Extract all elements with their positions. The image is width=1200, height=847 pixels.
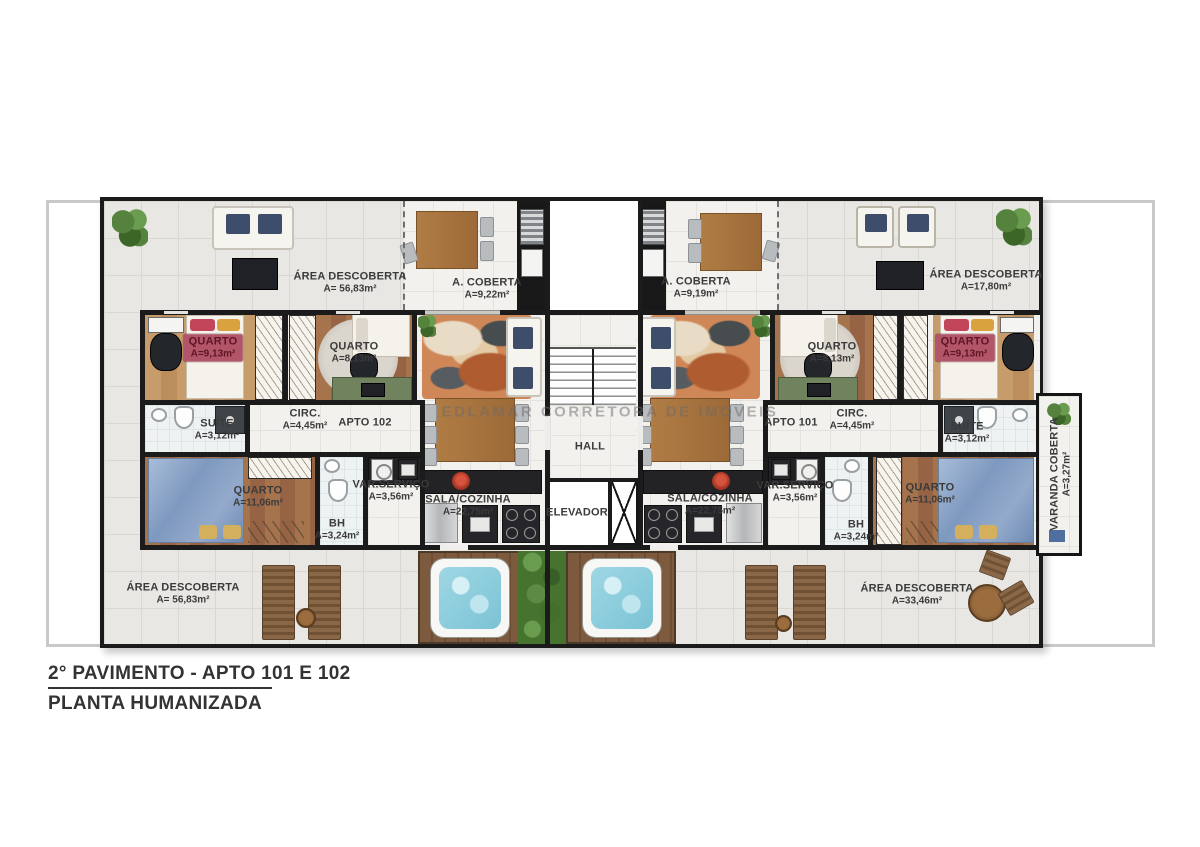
- sun-lounger: [745, 565, 778, 640]
- round-table: [968, 584, 1006, 622]
- wardrobe: [873, 315, 898, 400]
- armchair: [898, 206, 936, 248]
- plant-icon: [752, 313, 770, 339]
- double-bed: [148, 458, 244, 543]
- room-label-quarto-813-right: QUARTOA=8,13m²: [808, 340, 857, 365]
- sink: [1012, 408, 1028, 422]
- room-label-circ-left: CIRC.A=4,45m²: [283, 407, 328, 432]
- side-table: [296, 608, 316, 628]
- chair: [515, 426, 529, 444]
- stair-void: [545, 201, 638, 310]
- room-label-sala-cozinha-right: SALA/COZINHAA=22,75m²: [667, 492, 753, 517]
- room-label-quarto-913-right: QUARTOA=9,13m²: [936, 334, 995, 361]
- washing-machine: [796, 459, 818, 481]
- window: [822, 311, 846, 314]
- room-label-area-descoberta-top-right: ÁREA DESCOBERTAA=17,80m²: [929, 268, 1042, 293]
- garden-strip: [518, 551, 566, 644]
- fruit-bowl: [452, 472, 470, 490]
- wall: [770, 310, 775, 405]
- wall: [412, 310, 417, 405]
- room-label-servico-left: VAR.SERVIÇOA=3,56m²: [353, 478, 430, 503]
- plant-icon: [112, 207, 148, 249]
- rug-hatch: [248, 521, 304, 543]
- ac-unit: [641, 209, 665, 245]
- room-label-quarto-813-left: QUARTOA=8,13m²: [330, 340, 379, 365]
- room-label-quarto-1106-right: QUARTOA=11,06m²: [905, 481, 955, 506]
- armchair: [856, 206, 894, 248]
- hot-tub: [582, 558, 662, 638]
- room-label-quarto-1106-left: QUARTOA=11,06m²: [233, 484, 283, 509]
- laundry-sink: [398, 459, 418, 480]
- plan-subtitle: PLANTA HUMANIZADA: [48, 693, 262, 715]
- room-label-area-descoberta-bottom-left: ÁREA DESCOBERTAA= 56,83m²: [126, 581, 239, 606]
- room-label-servico-right: VAR.SERVIÇOA=3,56m²: [757, 479, 834, 504]
- chair: [423, 426, 437, 444]
- plant-icon: [996, 206, 1032, 248]
- wall: [245, 400, 250, 457]
- room-label-area-descoberta-top-left: ÁREA DESCOBERTAA= 56,83m²: [293, 270, 406, 295]
- toilet: [174, 406, 194, 429]
- wall: [763, 452, 1040, 457]
- room-label-sala-cozinha-left: SALA/COZINHAA=22,75m²: [425, 493, 511, 518]
- chair: [688, 243, 702, 263]
- desk-cabinet: [778, 377, 858, 401]
- chair: [515, 448, 529, 466]
- wall: [283, 310, 288, 405]
- door-mat: [1049, 530, 1065, 542]
- dresser: [1000, 317, 1034, 333]
- plan-title: 2° PAVIMENTO - APTO 101 E 102: [48, 663, 350, 685]
- dining-table: [700, 213, 762, 271]
- hot-tub: [430, 558, 510, 638]
- sofa: [640, 317, 676, 397]
- wall: [140, 310, 145, 550]
- room-label-suite-right: SUÍTEA=3,12m²: [945, 420, 990, 445]
- kitchen-island: [643, 470, 763, 494]
- fruit-bowl: [712, 472, 730, 490]
- title-underline: [48, 687, 272, 689]
- room-label-elevador: ELEVADOR: [546, 506, 608, 519]
- chair: [688, 219, 702, 239]
- watermark: EDLAMAR CORRETORA DE IMOVEIS: [442, 404, 779, 421]
- sink: [844, 459, 860, 473]
- toilet: [832, 479, 852, 502]
- room-label-a-coberta-left: A. COBERTAA=9,22m²: [452, 276, 522, 301]
- chair: [480, 241, 494, 261]
- wall: [545, 478, 638, 482]
- wall: [420, 400, 425, 550]
- sofa: [506, 317, 542, 397]
- patio-chair: [979, 549, 1012, 580]
- wall: [140, 452, 420, 457]
- water-heater: [642, 249, 664, 277]
- room-label-suite-left: SUÍTEA=3,12m²: [195, 417, 240, 442]
- chair: [423, 404, 437, 422]
- desk-chair: [1002, 333, 1034, 371]
- plant-icon: [418, 313, 436, 339]
- wardrobe: [255, 315, 283, 400]
- laundry-sink: [771, 459, 791, 480]
- door-opening: [545, 416, 550, 450]
- water-heater: [521, 249, 543, 277]
- wall: [608, 480, 612, 545]
- sun-lounger: [308, 565, 341, 640]
- room-label-circ-right: CIRC.A=4,45m²: [830, 407, 875, 432]
- floorplan-drawing: ÁREA DESCOBERTAA= 56,83m² A. COBERTAA=9,…: [100, 197, 1043, 648]
- wall: [140, 310, 1040, 315]
- boundary-dashed-right: [777, 201, 779, 310]
- sun-lounger: [793, 565, 826, 640]
- sun-lounger: [262, 565, 295, 640]
- window: [164, 311, 188, 314]
- dining-table: [416, 211, 478, 269]
- chair: [730, 448, 744, 466]
- wardrobe: [903, 315, 928, 400]
- staircase: [547, 347, 636, 405]
- chair: [730, 426, 744, 444]
- room-label-bh-right: BHA=3,24m²: [834, 518, 879, 543]
- wardrobe: [876, 457, 902, 545]
- door-opening: [638, 416, 643, 450]
- wall: [898, 310, 903, 405]
- tv-unit: [232, 258, 278, 290]
- ac-unit: [520, 209, 544, 245]
- wall: [140, 545, 1040, 550]
- tv-unit: [876, 261, 924, 290]
- wall: [638, 201, 643, 545]
- kitchen-island: [422, 470, 542, 494]
- wardrobe: [289, 315, 316, 400]
- wall: [938, 400, 943, 457]
- side-table: [775, 615, 792, 632]
- sofa: [212, 206, 294, 250]
- window: [990, 311, 1014, 314]
- room-label-varanda: VARANDA COBERTAA=3,27m²: [1048, 417, 1073, 530]
- sink: [151, 408, 167, 422]
- room-label-area-descoberta-bottom-right: ÁREA DESCOBERTAA=33,46m²: [860, 582, 973, 607]
- apartment-label-102: APTO 102: [338, 416, 391, 429]
- elevator-shaft: [610, 480, 638, 545]
- room-label-hall: HALL: [575, 440, 605, 453]
- chair: [480, 217, 494, 237]
- wardrobe: [248, 457, 312, 479]
- dresser: [148, 317, 184, 333]
- wall: [140, 400, 420, 405]
- floorplan-page: ÁREA DESCOBERTAA= 56,83m² A. COBERTAA=9,…: [0, 0, 1200, 847]
- door-opening: [440, 545, 468, 550]
- toilet: [328, 479, 348, 502]
- room-label-a-coberta-right: A. COBERTAA=9,19m²: [661, 275, 731, 300]
- sink: [324, 459, 340, 473]
- sliding-door: [425, 310, 500, 315]
- window: [336, 311, 360, 314]
- desk-cabinet: [332, 377, 412, 401]
- room-label-bh-left: BHA=3,24m²: [315, 517, 360, 542]
- chair: [423, 448, 437, 466]
- stair-landing: [550, 315, 636, 347]
- sliding-door: [685, 310, 760, 315]
- door-opening: [650, 545, 678, 550]
- desk-chair: [150, 333, 182, 371]
- room-label-quarto-913-left: QUARTOA=9,13m²: [184, 334, 243, 361]
